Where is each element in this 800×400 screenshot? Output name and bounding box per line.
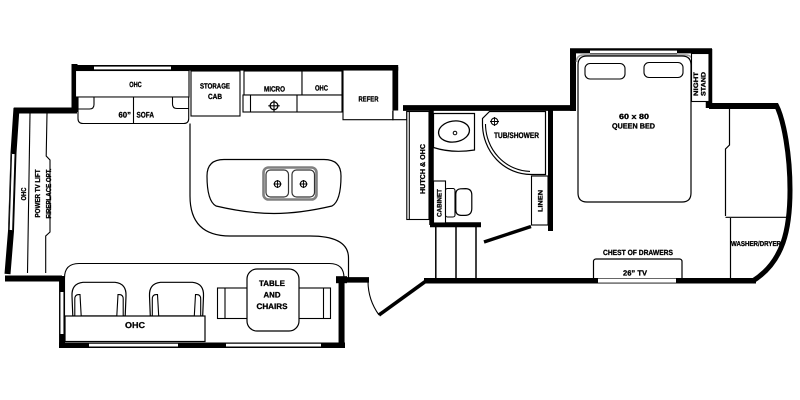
svg-text:60 x 80: 60 x 80 xyxy=(619,112,649,121)
svg-text:STAND: STAND xyxy=(701,72,708,96)
svg-text:CHAIRS: CHAIRS xyxy=(257,302,289,311)
svg-text:NIGHT: NIGHT xyxy=(693,72,700,96)
svg-text:WASHER/DRYER: WASHER/DRYER xyxy=(731,240,781,248)
svg-text:QUEEN BED: QUEEN BED xyxy=(612,122,656,131)
svg-text:LINEN: LINEN xyxy=(538,190,545,212)
svg-text:26” TV: 26” TV xyxy=(623,269,647,278)
svg-text:OHC: OHC xyxy=(21,188,28,201)
svg-text:REFER: REFER xyxy=(359,95,379,104)
svg-text:OHC: OHC xyxy=(129,80,142,89)
svg-text:AND: AND xyxy=(264,291,281,300)
svg-text:CAB: CAB xyxy=(208,92,223,101)
svg-text:60”: 60” xyxy=(119,110,132,119)
svg-text:MICRO: MICRO xyxy=(264,85,285,94)
svg-text:OHC: OHC xyxy=(315,84,328,93)
svg-text:TABLE: TABLE xyxy=(259,279,286,288)
svg-text:HUTCH & OHC: HUTCH & OHC xyxy=(420,144,427,194)
svg-text:OHC: OHC xyxy=(125,320,145,330)
svg-text:CABINET: CABINET xyxy=(437,189,444,217)
svg-text:POWER TV LIFT: POWER TV LIFT xyxy=(33,169,42,218)
svg-text:CHEST OF DRAWERS: CHEST OF DRAWERS xyxy=(603,248,673,257)
svg-text:STORAGE: STORAGE xyxy=(200,82,230,91)
svg-text:SOFA: SOFA xyxy=(137,110,155,119)
svg-text:TUB/SHOWER: TUB/SHOWER xyxy=(494,131,539,140)
svg-text:FIREPLACE OPT.: FIREPLACE OPT. xyxy=(44,168,53,218)
